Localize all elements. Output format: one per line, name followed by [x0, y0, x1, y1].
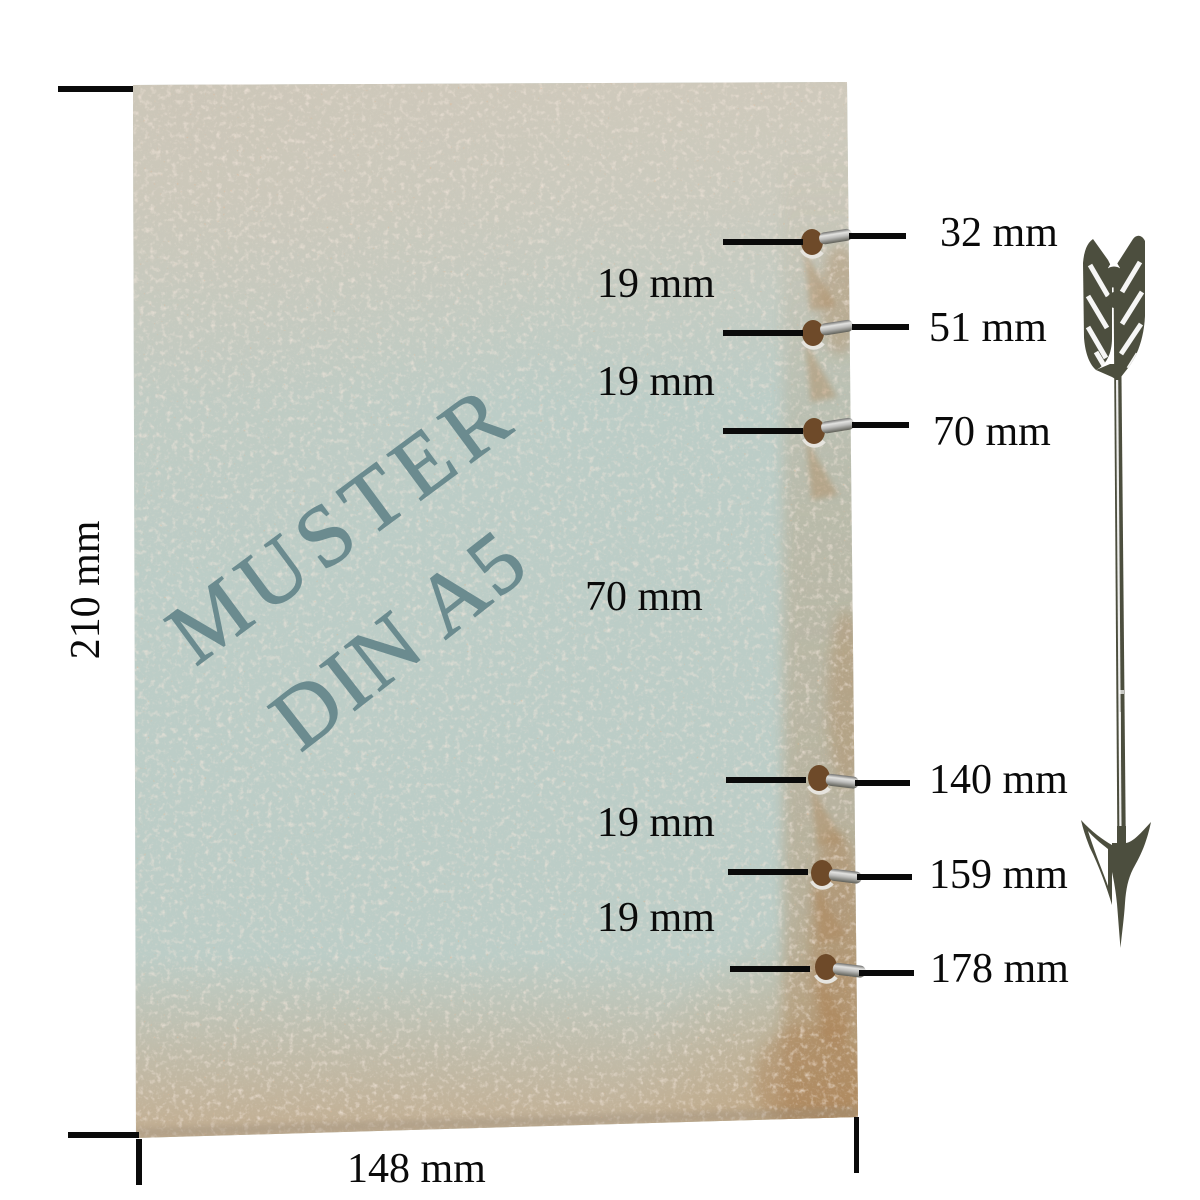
svg-text:70 mm: 70 mm: [585, 574, 703, 620]
svg-text:70 mm: 70 mm: [933, 409, 1051, 455]
svg-text:19 mm: 19 mm: [597, 895, 715, 941]
svg-text:140 mm: 140 mm: [929, 757, 1068, 803]
svg-text:19 mm: 19 mm: [597, 261, 715, 307]
svg-text:32 mm: 32 mm: [940, 210, 1058, 256]
svg-text:19 mm: 19 mm: [597, 800, 715, 846]
svg-text:148 mm: 148 mm: [347, 1146, 486, 1192]
svg-text:210 mm: 210 mm: [63, 520, 109, 659]
svg-text:178 mm: 178 mm: [930, 946, 1069, 992]
svg-text:51 mm: 51 mm: [929, 305, 1047, 351]
svg-text:159 mm: 159 mm: [929, 852, 1068, 898]
svg-text:19 mm: 19 mm: [597, 359, 715, 405]
